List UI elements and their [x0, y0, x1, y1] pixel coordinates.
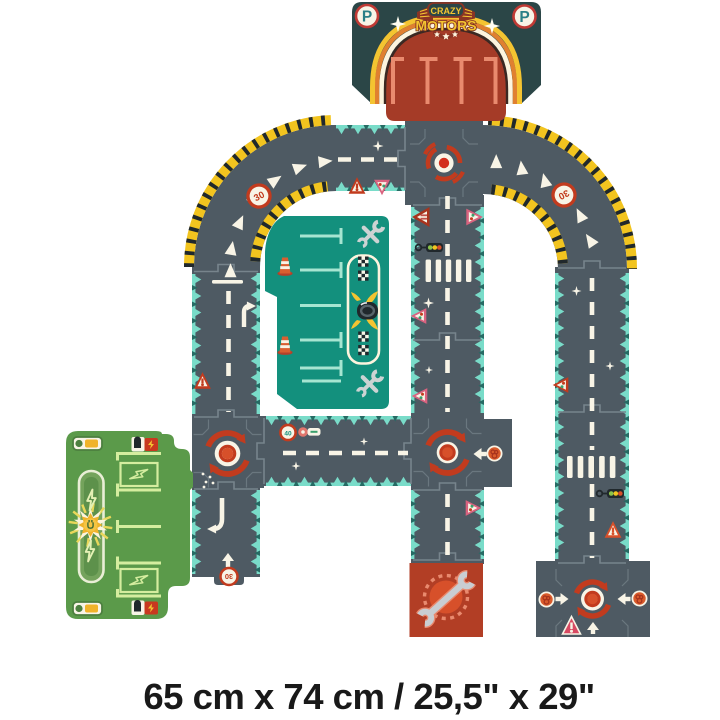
svg-text:P: P — [519, 9, 529, 26]
svg-text:CRAZY: CRAZY — [431, 6, 462, 16]
svg-text:40: 40 — [284, 431, 292, 438]
svg-text:P: P — [362, 9, 372, 26]
svg-text:30: 30 — [225, 572, 233, 581]
svg-text:MOTORS: MOTORS — [415, 18, 476, 34]
